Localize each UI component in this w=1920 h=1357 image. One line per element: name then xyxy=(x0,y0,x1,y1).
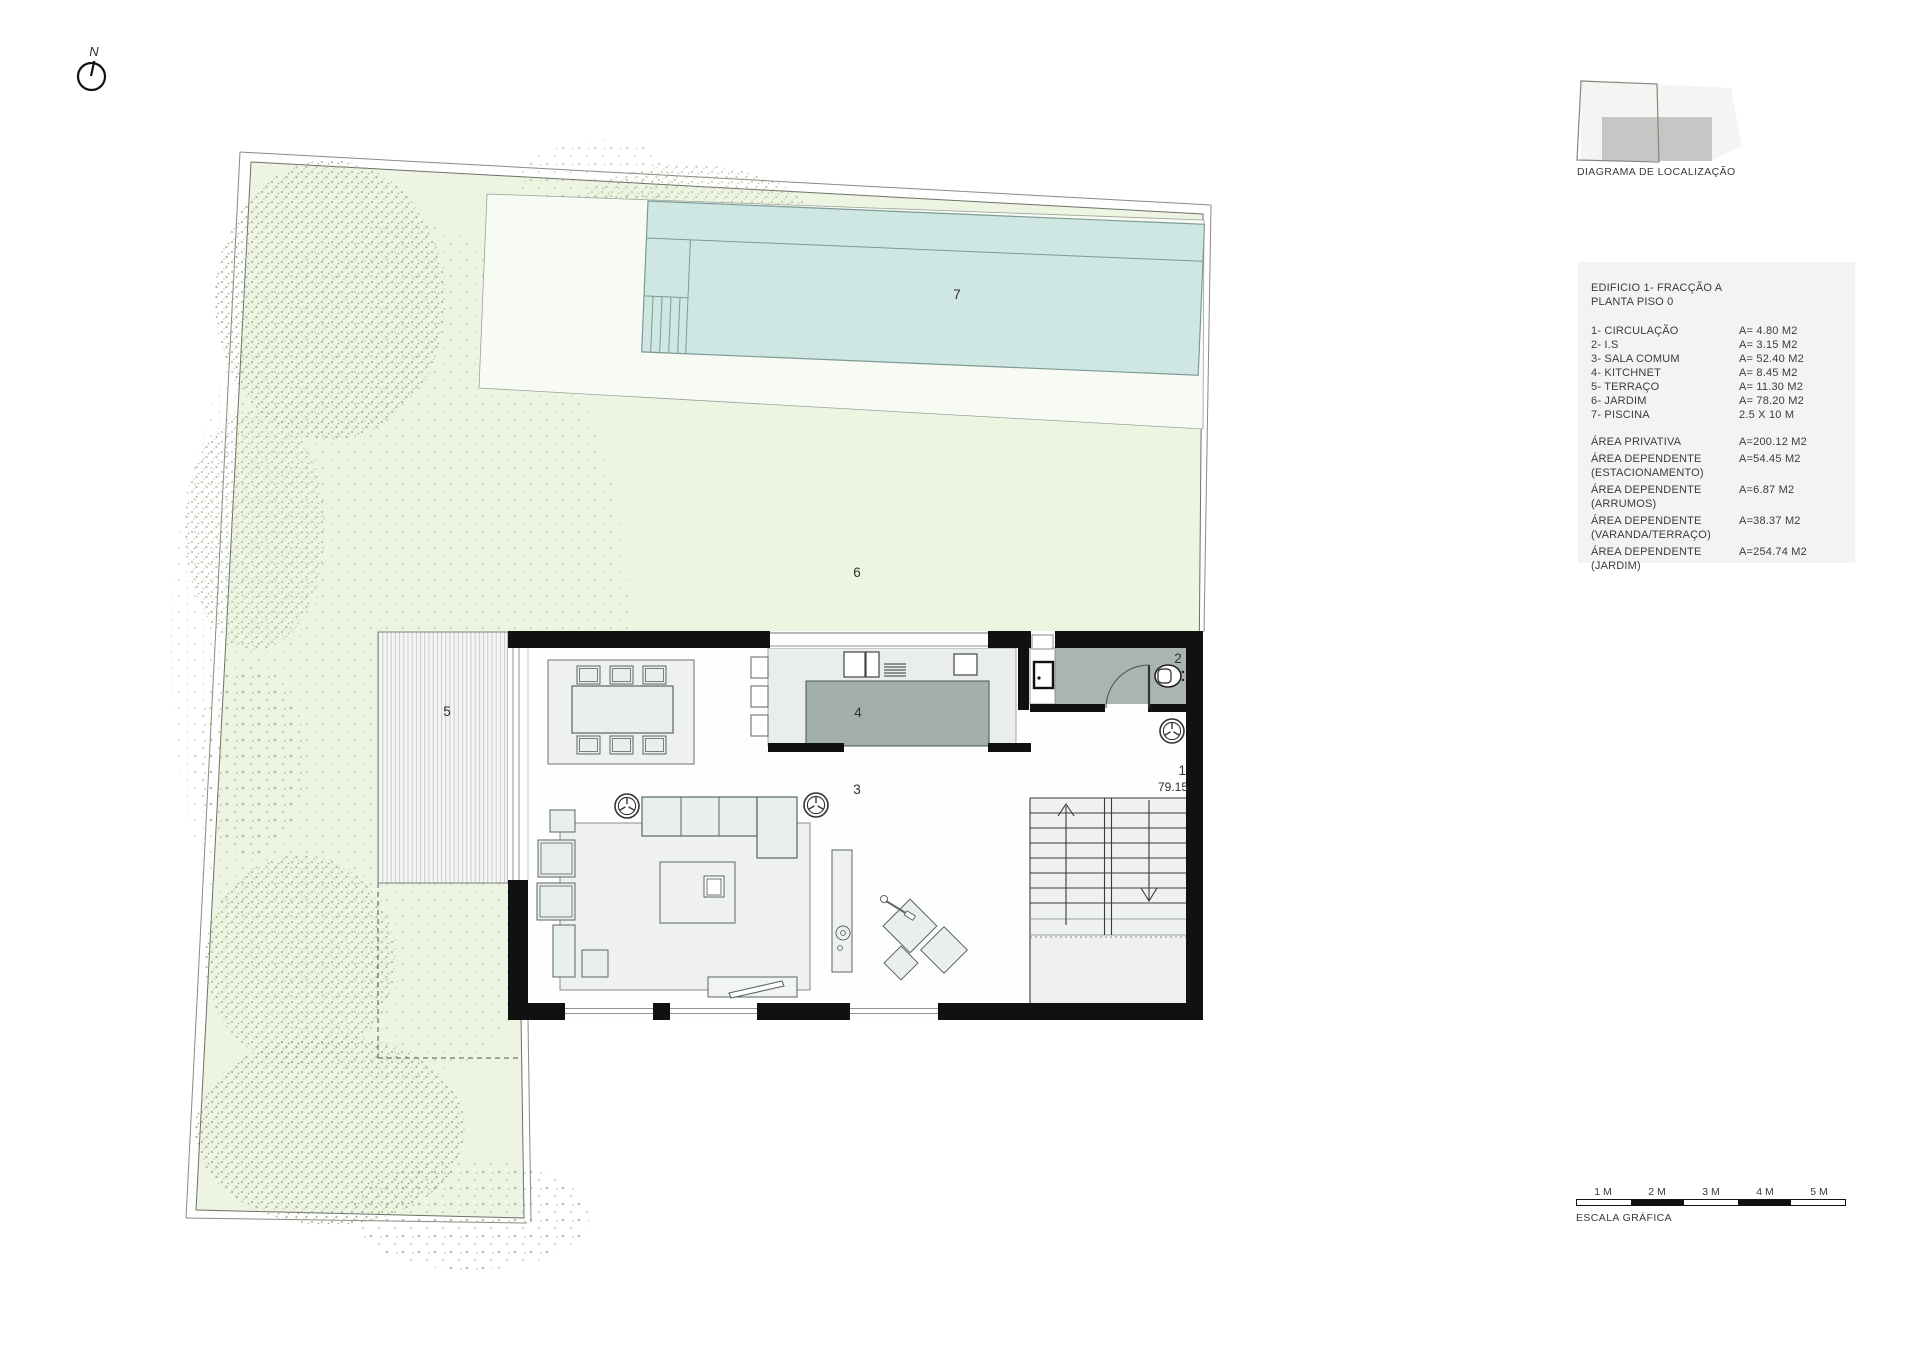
legend-area-list: ÁREA PRIVATIVA A=200.12 M2 ÁREA DEPENDEN… xyxy=(1591,435,1842,573)
legend-title-line2: PLANTA PISO 0 xyxy=(1591,295,1842,309)
area-value: A=54.45 M2 xyxy=(1739,452,1842,480)
legend-area-row: ÁREA DEPENDENTE (JARDIM) A=254.74 M2 xyxy=(1591,545,1842,573)
location-diagram xyxy=(1577,80,1742,162)
legend-area-row: ÁREA DEPENDENTE (ARRUMOS) A=6.87 M2 xyxy=(1591,483,1842,511)
scale-tick: 2 M xyxy=(1630,1186,1684,1198)
label-pool: 7 xyxy=(953,287,961,302)
area-value: A=254.74 M2 xyxy=(1739,545,1842,573)
scale-bar-segment xyxy=(1684,1200,1738,1205)
tv-bench xyxy=(708,977,797,998)
legend-title: EDIFICIO 1- FRACÇÃO A PLANTA PISO 0 xyxy=(1591,281,1842,309)
label-kitchen: 4 xyxy=(854,705,862,720)
floor-plan-canvas: 7 6 5 4 3 2 1 79.15 N xyxy=(0,0,1920,1357)
area-label: ÁREA DEPENDENTE xyxy=(1591,453,1702,465)
legend-room-row: 7- PISCINA 2.5 X 10 M xyxy=(1591,408,1842,422)
room-label: 2- I.S xyxy=(1591,338,1739,352)
kitchen-island xyxy=(806,681,989,746)
scale-bar-segment xyxy=(1791,1200,1845,1205)
label-terrace: 5 xyxy=(443,704,451,719)
room-area: A= 11.30 M2 xyxy=(1739,380,1842,394)
water-heater xyxy=(1034,662,1053,688)
north-arrow-circle xyxy=(78,63,105,90)
graphic-scale: 1 M 2 M 3 M 4 M 5 M ESCALA GRÁFICA xyxy=(1576,1186,1846,1224)
scale-bar xyxy=(1576,1199,1846,1206)
room-area: 2.5 X 10 M xyxy=(1739,408,1842,422)
north-label: N xyxy=(89,44,99,59)
location-diagram-caption: DIAGRAMA DE LOCALIZAÇÃO xyxy=(1577,166,1736,178)
area-sublabel: (ARRUMOS) xyxy=(1591,498,1656,510)
room-area: A= 8.45 M2 xyxy=(1739,366,1842,380)
scale-bar-segment xyxy=(1631,1200,1685,1205)
room-label: 4- KITCHNET xyxy=(1591,366,1739,380)
legend-area-row: ÁREA DEPENDENTE (ESTACIONAMENTO) A=54.45… xyxy=(1591,452,1842,480)
legend-area-row: ÁREA DEPENDENTE (VARANDA/TERRAÇO) A=38.3… xyxy=(1591,514,1842,542)
room-area: A= 52.40 M2 xyxy=(1739,352,1842,366)
legend-panel: EDIFICIO 1- FRACÇÃO A PLANTA PISO 0 1- C… xyxy=(1578,262,1855,563)
room-label: 6- JARDIM xyxy=(1591,394,1739,408)
stairs-floor xyxy=(1030,798,1187,1003)
label-garden: 6 xyxy=(853,565,861,580)
area-sublabel: (JARDIM) xyxy=(1591,560,1641,572)
terrace xyxy=(378,632,508,883)
legend-room-row: 1- CIRCULAÇÃO A= 4.80 M2 xyxy=(1591,324,1842,338)
north-arrow: N xyxy=(78,44,105,90)
room-label: 7- PISCINA xyxy=(1591,408,1739,422)
area-value: A=200.12 M2 xyxy=(1739,435,1842,449)
scale-tick: 3 M xyxy=(1684,1186,1738,1198)
area-label: ÁREA DEPENDENTE xyxy=(1591,546,1702,558)
dining-table xyxy=(572,686,673,733)
area-label: ÁREA PRIVATIVA xyxy=(1591,436,1681,448)
label-living-room: 3 xyxy=(853,782,861,797)
legend-room-row: 2- I.S A= 3.15 M2 xyxy=(1591,338,1842,352)
area-sublabel: (VARANDA/TERRAÇO) xyxy=(1591,529,1711,541)
room-area: A= 3.15 M2 xyxy=(1739,338,1842,352)
room-label: 3- SALA COMUM xyxy=(1591,352,1739,366)
scale-bar-segment xyxy=(1738,1200,1792,1205)
area-value: A=38.37 M2 xyxy=(1739,514,1842,542)
label-floor-level: 79.15 xyxy=(1158,780,1188,794)
entry-threshold xyxy=(1032,635,1053,649)
wall-shelves xyxy=(751,657,768,736)
legend-title-line1: EDIFICIO 1- FRACÇÃO A xyxy=(1591,281,1842,295)
scale-caption: ESCALA GRÁFICA xyxy=(1576,1212,1846,1224)
legend-room-row: 4- KITCHNET A= 8.45 M2 xyxy=(1591,366,1842,380)
legend-area-row: ÁREA PRIVATIVA A=200.12 M2 xyxy=(1591,435,1842,449)
area-label: ÁREA DEPENDENTE xyxy=(1591,515,1702,527)
area-label: ÁREA DEPENDENTE xyxy=(1591,484,1702,496)
scale-bar-segment xyxy=(1577,1200,1631,1205)
legend-room-list: 1- CIRCULAÇÃO A= 4.80 M2 2- I.S A= 3.15 … xyxy=(1591,324,1842,422)
area-value: A=6.87 M2 xyxy=(1739,483,1842,511)
legend-room-row: 3- SALA COMUM A= 52.40 M2 xyxy=(1591,352,1842,366)
scale-tick: 4 M xyxy=(1738,1186,1792,1198)
scale-tick: 1 M xyxy=(1576,1186,1630,1198)
label-circulation: 1 xyxy=(1178,763,1186,778)
diagram-building-footprint xyxy=(1602,117,1712,161)
room-label: 5- TERRAÇO xyxy=(1591,380,1739,394)
area-sublabel: (ESTACIONAMENTO) xyxy=(1591,467,1704,479)
label-bathroom: 2 xyxy=(1174,651,1182,666)
room-area: A= 78.20 M2 xyxy=(1739,394,1842,408)
room-area: A= 4.80 M2 xyxy=(1739,324,1842,338)
sideboard xyxy=(832,850,852,972)
room-label: 1- CIRCULAÇÃO xyxy=(1591,324,1739,338)
scale-tick: 5 M xyxy=(1792,1186,1846,1198)
legend-room-row: 6- JARDIM A= 78.20 M2 xyxy=(1591,394,1842,408)
coffee-table xyxy=(660,862,735,923)
scale-tick-labels: 1 M 2 M 3 M 4 M 5 M xyxy=(1576,1186,1846,1198)
floor-plan-sheet: 7 6 5 4 3 2 1 79.15 N DIAGRAMA DE LOCALI… xyxy=(0,0,1920,1357)
pool xyxy=(642,201,1205,375)
legend-room-row: 5- TERRAÇO A= 11.30 M2 xyxy=(1591,380,1842,394)
